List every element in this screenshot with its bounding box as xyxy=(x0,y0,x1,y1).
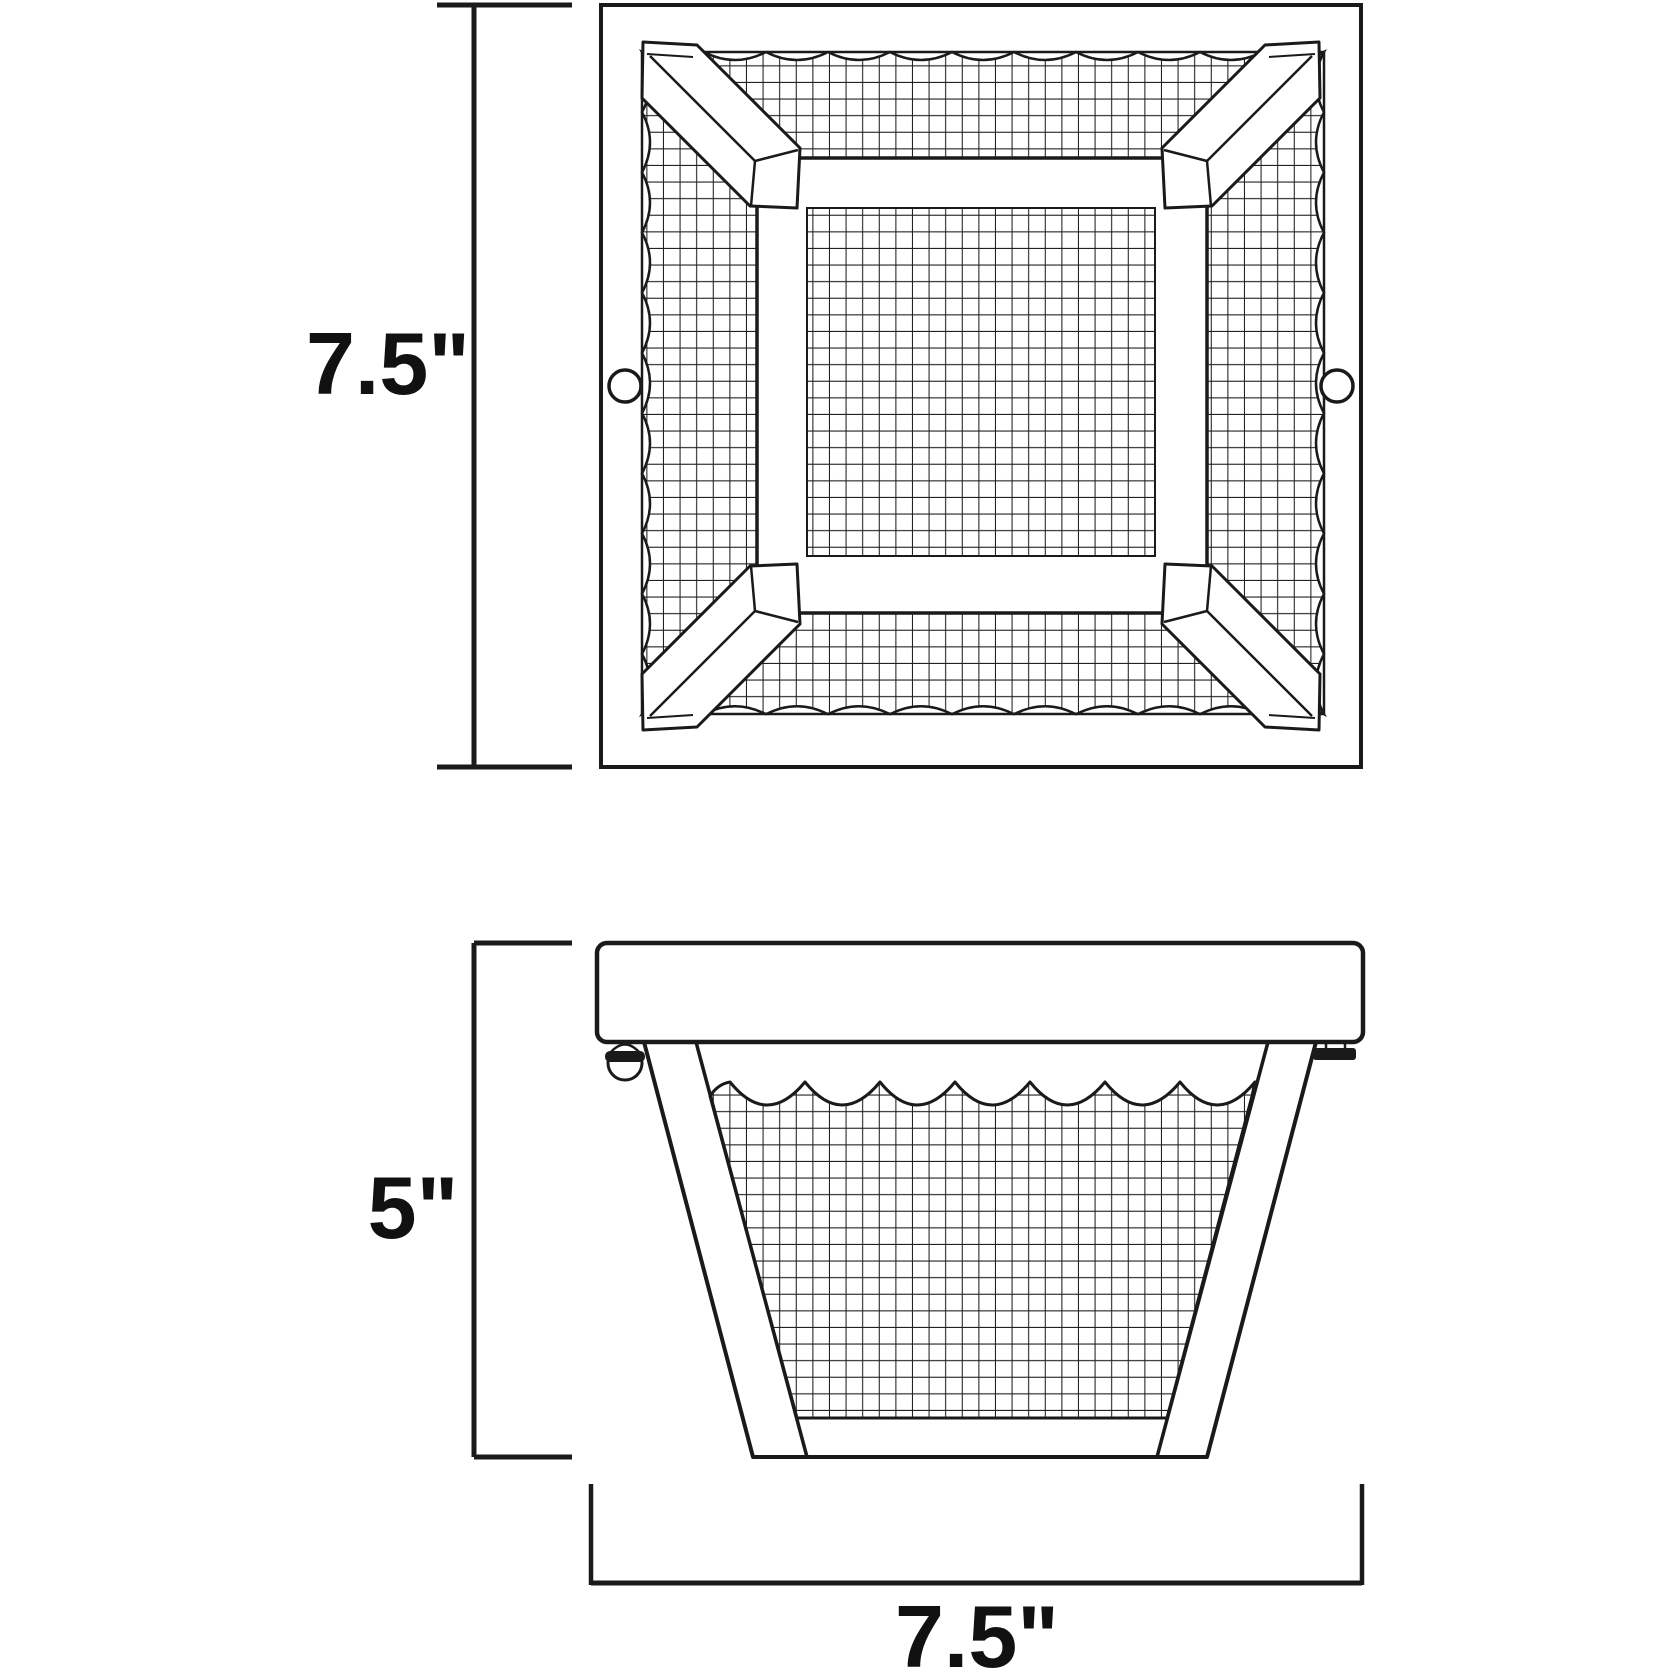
drawing-sheet: 7.5" 5" xyxy=(0,0,1680,1680)
diagram-canvas: 7.5" 5" xyxy=(0,0,1680,1680)
dimension-label-front-view-height: 5" xyxy=(368,1158,459,1257)
front-view-glass-mesh xyxy=(710,1082,1255,1418)
top-view-center-glass-mesh xyxy=(807,208,1155,556)
dimension-front-view-width: 7.5" xyxy=(591,1484,1362,1680)
screw-right-icon xyxy=(1313,1042,1356,1060)
top-view-drawing: 7.5" xyxy=(306,5,1361,767)
dimension-label-top-view-height: 7.5" xyxy=(306,314,470,413)
dimension-front-view-height: 5" xyxy=(368,943,572,1457)
screw-hole-right-icon xyxy=(1321,370,1353,402)
front-view-drawing: 5" 7.5" xyxy=(368,943,1363,1680)
dimension-label-front-view-width: 7.5" xyxy=(895,1587,1059,1680)
thumbscrew-left-icon xyxy=(605,1045,645,1081)
front-view-ceiling-cap xyxy=(597,943,1363,1042)
dimension-top-view-height: 7.5" xyxy=(306,5,572,767)
screw-hole-left-icon xyxy=(609,370,641,402)
